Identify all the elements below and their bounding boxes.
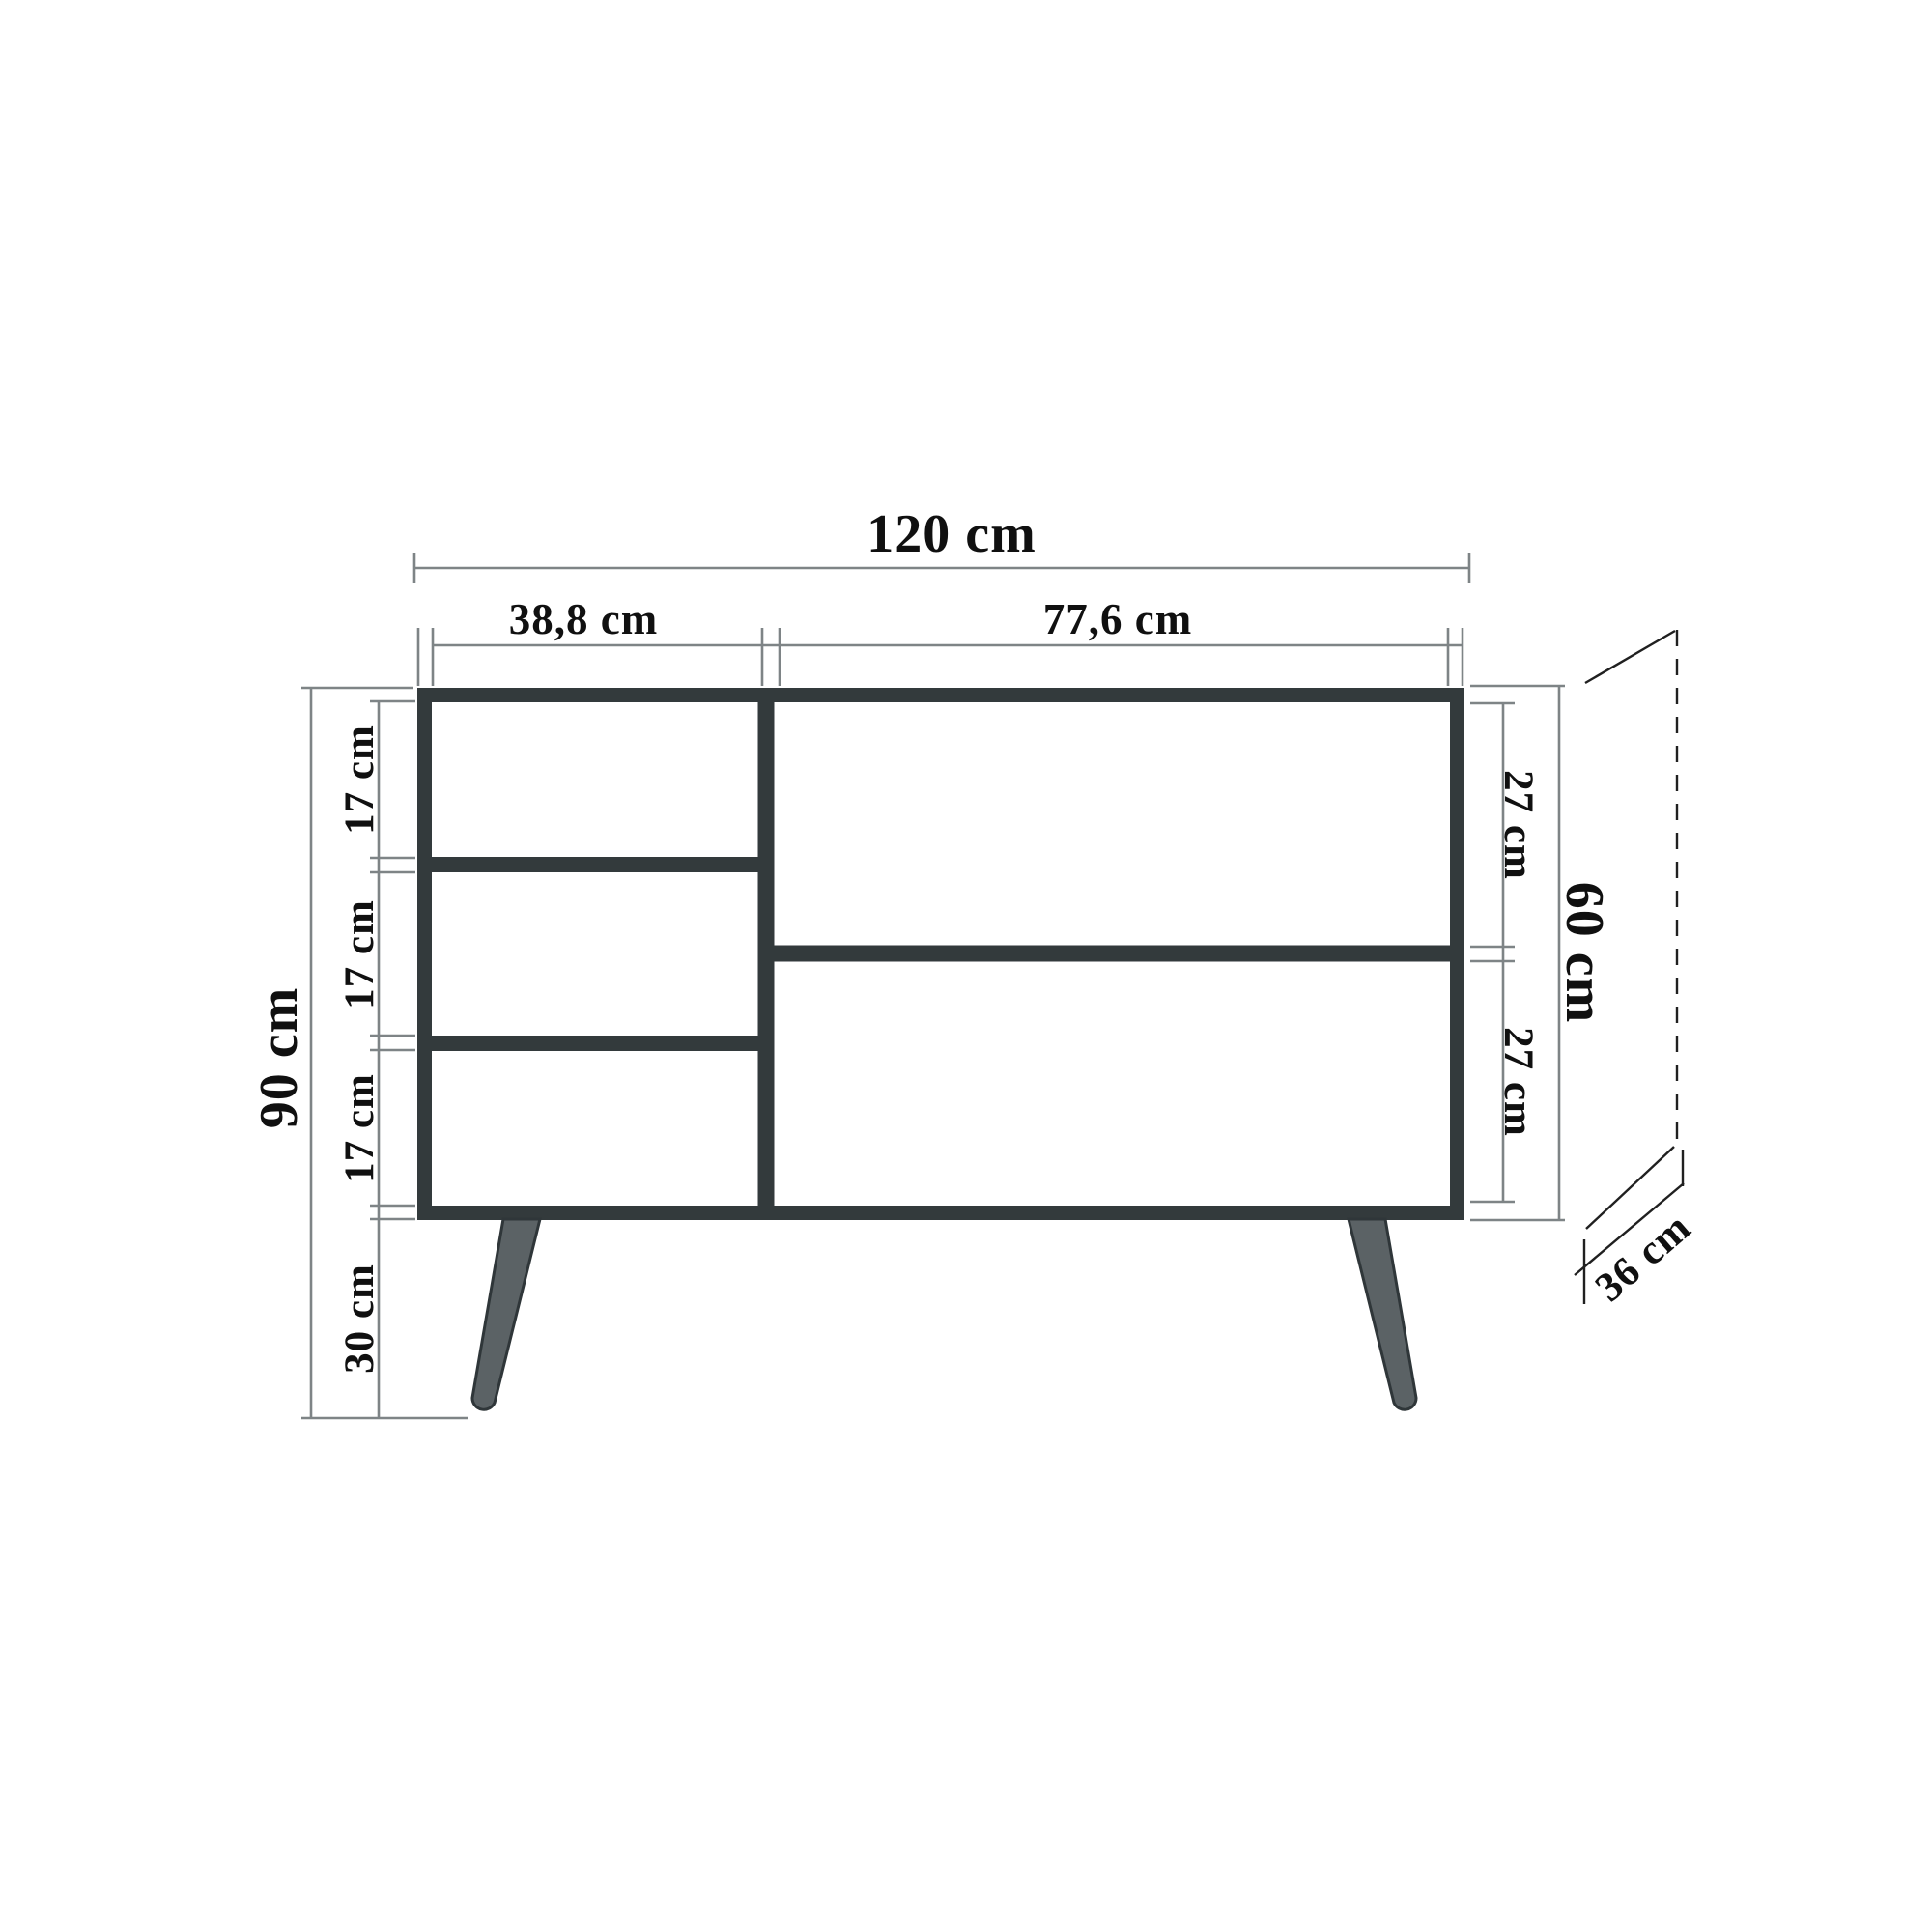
label-body-height: 60 cm bbox=[1554, 882, 1614, 1024]
dimension-right-compartments: 27 cm 27 cm bbox=[1470, 703, 1541, 1202]
technical-drawing-canvas: 120 cm 38,8 cm 77,6 cm 90 cm 17 cm 17 cm… bbox=[0, 0, 1932, 1932]
label-left-compartment-2: 17 cm bbox=[337, 899, 383, 1009]
label-left-compartment-1: 17 cm bbox=[337, 724, 383, 835]
projection-line-top bbox=[1585, 631, 1675, 683]
dimension-body-height: 60 cm bbox=[1470, 686, 1614, 1220]
label-leg-height: 30 cm bbox=[337, 1264, 383, 1374]
furniture-dimension-diagram: 120 cm 38,8 cm 77,6 cm 90 cm 17 cm 17 cm… bbox=[0, 0, 1932, 1932]
cabinet bbox=[425, 690, 1460, 1409]
label-right-compartment-top: 27 cm bbox=[1495, 770, 1541, 880]
dimension-total-width: 120 cm bbox=[414, 504, 1469, 583]
right-leg bbox=[1349, 1219, 1416, 1409]
dimension-left-compartments: 17 cm 17 cm 17 cm 30 cm bbox=[337, 701, 415, 1418]
label-total-width: 120 cm bbox=[867, 504, 1037, 564]
label-depth: 36 cm bbox=[1587, 1205, 1700, 1311]
label-left-compartment-3: 17 cm bbox=[337, 1073, 383, 1183]
label-right-compartment-bottom: 27 cm bbox=[1495, 1027, 1541, 1137]
label-left-column-width: 38,8 cm bbox=[509, 595, 658, 643]
dimension-column-widths: 38,8 cm 77,6 cm bbox=[418, 595, 1463, 686]
left-leg bbox=[472, 1219, 540, 1409]
label-overall-height: 90 cm bbox=[249, 987, 309, 1129]
label-right-column-width: 77,6 cm bbox=[1043, 595, 1192, 643]
